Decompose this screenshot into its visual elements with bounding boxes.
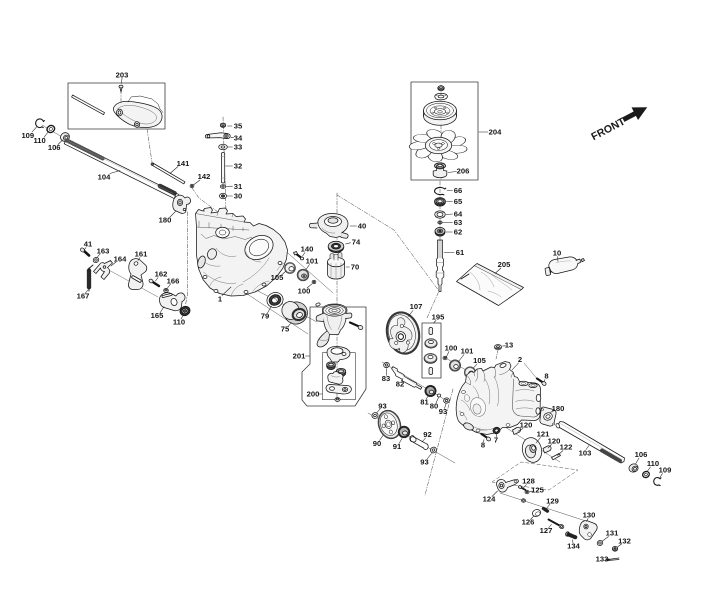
svg-text:40: 40	[358, 222, 366, 231]
svg-text:90: 90	[373, 439, 381, 448]
svg-text:61: 61	[456, 248, 465, 257]
svg-text:106: 106	[635, 450, 648, 459]
svg-text:83: 83	[382, 374, 390, 383]
svg-text:93: 93	[378, 402, 386, 411]
svg-text:7: 7	[494, 436, 498, 445]
svg-text:93: 93	[439, 407, 447, 416]
svg-text:8: 8	[544, 372, 548, 381]
svg-text:101: 101	[461, 347, 474, 356]
svg-text:33: 33	[234, 143, 242, 152]
svg-text:130: 130	[583, 511, 596, 520]
svg-text:125: 125	[531, 486, 544, 495]
svg-text:140: 140	[301, 245, 314, 254]
svg-text:128: 128	[522, 477, 535, 486]
svg-text:142: 142	[198, 172, 211, 181]
svg-text:92: 92	[423, 430, 431, 439]
svg-text:80: 80	[430, 402, 438, 411]
svg-text:129: 129	[546, 497, 559, 506]
svg-text:65: 65	[454, 197, 463, 206]
svg-text:204: 204	[489, 128, 502, 137]
svg-text:164: 164	[114, 255, 127, 264]
svg-text:131: 131	[606, 529, 619, 538]
svg-text:79: 79	[261, 312, 269, 321]
svg-text:2: 2	[518, 355, 522, 364]
svg-text:163: 163	[97, 247, 110, 256]
svg-text:195: 195	[432, 313, 445, 322]
svg-text:66: 66	[454, 186, 462, 195]
svg-text:161: 161	[135, 250, 148, 259]
svg-text:200: 200	[307, 390, 320, 399]
svg-text:31: 31	[234, 182, 243, 191]
svg-text:110: 110	[647, 459, 659, 468]
svg-text:105: 105	[473, 356, 486, 365]
svg-text:107: 107	[410, 302, 423, 311]
svg-text:109: 109	[659, 466, 672, 475]
svg-text:110: 110	[173, 318, 185, 327]
svg-text:134: 134	[567, 542, 580, 551]
svg-text:74: 74	[352, 238, 361, 247]
svg-text:162: 162	[155, 270, 168, 279]
svg-text:10: 10	[553, 249, 561, 258]
svg-text:91: 91	[393, 442, 402, 451]
svg-text:206: 206	[457, 167, 470, 176]
svg-text:100: 100	[298, 287, 311, 296]
svg-text:201: 201	[293, 352, 306, 361]
svg-text:93: 93	[420, 458, 428, 467]
svg-text:203: 203	[116, 71, 129, 80]
svg-text:120: 120	[548, 437, 561, 446]
svg-text:141: 141	[177, 159, 190, 168]
svg-text:32: 32	[234, 162, 242, 171]
svg-text:103: 103	[579, 449, 592, 458]
svg-text:167: 167	[77, 292, 90, 301]
svg-text:133: 133	[596, 555, 609, 564]
svg-text:70: 70	[351, 263, 359, 272]
svg-text:104: 104	[98, 172, 111, 181]
svg-text:105: 105	[271, 273, 284, 282]
svg-text:166: 166	[167, 277, 180, 286]
svg-text:180: 180	[159, 216, 172, 225]
svg-text:109: 109	[21, 131, 34, 140]
svg-text:81: 81	[420, 398, 429, 407]
svg-text:8: 8	[481, 441, 485, 450]
svg-text:132: 132	[618, 537, 631, 546]
svg-text:205: 205	[498, 260, 511, 269]
svg-text:100: 100	[445, 344, 458, 353]
svg-text:41: 41	[84, 240, 93, 249]
svg-text:120: 120	[520, 421, 533, 430]
svg-text:34: 34	[234, 134, 243, 143]
svg-text:110: 110	[33, 136, 45, 145]
svg-text:30: 30	[234, 192, 242, 201]
svg-text:165: 165	[151, 311, 164, 320]
svg-text:126: 126	[522, 518, 535, 527]
svg-text:35: 35	[234, 122, 243, 131]
svg-text:75: 75	[281, 325, 290, 334]
svg-text:62: 62	[454, 228, 462, 237]
svg-text:106: 106	[48, 143, 61, 152]
svg-text:122: 122	[560, 443, 573, 452]
svg-text:180: 180	[552, 404, 565, 413]
svg-text:127: 127	[540, 526, 553, 535]
svg-text:124: 124	[483, 495, 496, 504]
svg-text:101: 101	[306, 257, 319, 266]
svg-text:13: 13	[505, 341, 513, 350]
svg-text:63: 63	[454, 218, 462, 227]
svg-text:82: 82	[396, 380, 404, 389]
